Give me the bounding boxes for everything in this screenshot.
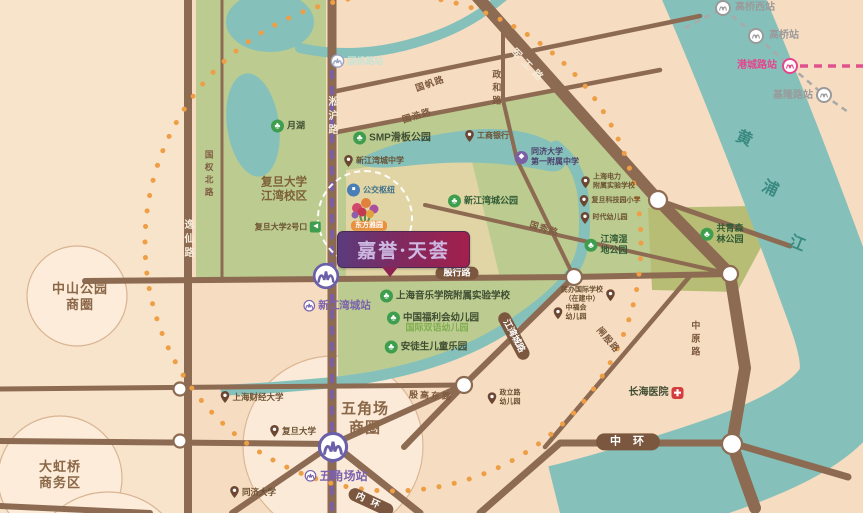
poi-jiangwan-wetland-park: ♣江湾湿地公园: [584, 234, 627, 257]
poi-fudan-gate2-text: 复旦大学2号口: [255, 222, 307, 232]
station-gaoqiao-label-text: 高桥站: [769, 30, 799, 42]
poi-bus-hub: ■公交枢纽: [347, 184, 395, 197]
station-xinjiangwancheng-text: 新江湾城站: [318, 300, 371, 313]
hospital-cross-icon: ✚: [672, 387, 684, 399]
road-yingaodong: 殷高东路: [409, 389, 454, 402]
poi-shanghai-electric-school-text: 上海电力附属实验学校: [593, 173, 635, 191]
poi-intl-bilingual-kindergarten: 国际双语幼儿园: [405, 323, 468, 334]
map-pin-icon: [230, 486, 239, 498]
station-gangchenglu-label-text: 港城路站: [737, 60, 777, 72]
road-songhu-text: 淞沪路: [325, 96, 337, 138]
map-pin-icon: [554, 307, 563, 319]
road-guohao: 国浩路: [401, 106, 433, 125]
poi-tongji-no1-middle-school: ◆同济大学第一附属中学: [515, 147, 579, 167]
metro-logo-icon: [304, 470, 316, 482]
poi-fudan-jiangwan-campus: 复旦大学江湾校区: [261, 176, 307, 205]
road-zhonghuan-badge: 中环: [596, 433, 660, 450]
metro-logo-icon: [330, 54, 344, 68]
poi-fudan-univ-text: 复旦大学: [282, 426, 316, 436]
school-icon: ◆: [515, 151, 528, 164]
poi-zhongfuhui-kindergarten: 中福会幼儿园: [554, 304, 587, 322]
poi-gongqing-forest-park-text: 共青森林公园: [716, 223, 743, 246]
poi-tongji-univ: 同济大学: [230, 486, 276, 498]
road-zhongyuan-text: 中原路: [690, 321, 701, 360]
poi-bus-hub-text: 公交枢纽: [363, 185, 395, 195]
poi-yuehu: ♣月湖: [271, 120, 305, 133]
road-yinhang-badge: 殷行路: [435, 267, 478, 280]
huangpu-river-char-3-text: 江: [786, 232, 808, 256]
poi-fudan-gate2: 复旦大学2号口◀: [255, 222, 321, 233]
road-songhu: 淞沪路: [325, 96, 337, 138]
road-zhayin-text: 闸殷路: [594, 325, 622, 355]
road-guoquanbei: 国权北路: [204, 150, 214, 200]
poi-andersen-children-park-text: 安徒生儿童乐园: [401, 341, 468, 352]
station-gaoqiaoxi-label-text: 高桥西站: [735, 2, 775, 14]
road-zhayin: 闸殷路: [594, 325, 622, 355]
poi-shanghai-finance-univ: 上海财经大学: [220, 391, 283, 403]
metro-logo-xinjiangwancheng: [313, 263, 340, 290]
poi-tongji-univ-text: 同济大学: [242, 487, 276, 497]
map-pin-icon: [488, 392, 497, 404]
poi-shangyin-experimental-school: ♣上海音乐学院附属实验学校: [380, 290, 510, 303]
poi-shanghai-finance-univ-text: 上海财经大学: [232, 392, 283, 402]
road-guoquanbei-text: 国权北路: [204, 150, 214, 200]
district-dahongqiao: 大虹桥商务区: [39, 459, 81, 492]
park-icon: ♣: [700, 228, 713, 241]
road-jungong-text: 军工路: [508, 47, 548, 87]
station-gangchenglu-label: 港城路站: [737, 60, 777, 72]
station-gaoqiaoxi-label: 高桥西站: [735, 2, 775, 14]
map-pin-icon: [581, 176, 590, 188]
park-icon: ♣: [387, 312, 400, 325]
poi-fudan-tech-primary: 复旦科技园小学: [580, 195, 641, 207]
huangpu-river-char-2-text: 浦: [759, 177, 781, 201]
station-jilonglu-label-text: 基隆路站: [773, 90, 813, 102]
road-guoxiu: 国秀路: [528, 219, 560, 238]
road-jungong: 军工路: [508, 47, 548, 87]
huangpu-river-char-3: 江: [786, 232, 808, 256]
district-dahongqiao-text: 大虹桥商务区: [39, 459, 81, 492]
poi-zhengli-kindergarten-text: 政立路幼儿园: [500, 389, 521, 407]
poi-xinjiangwan-school-text: 新江湾城中学: [356, 156, 404, 166]
poi-icbc-bank: 工商银行: [465, 130, 509, 142]
station-guofanlu: 国帆路站: [330, 54, 383, 68]
road-yinhang-badge-text: 殷行路: [443, 268, 470, 279]
road-yixian-text: 逸仙路: [181, 219, 193, 261]
map-pin-icon: [220, 391, 229, 403]
station-gaoqiao-label: 高桥站: [769, 30, 799, 42]
poi-changhai-hospital: 长海医院✚: [629, 387, 684, 399]
road-zhongyuan: 中原路: [690, 321, 701, 360]
poi-zhongfuhui-kindergarten-text: 中福会幼儿园: [566, 304, 587, 322]
poi-smp-skatepark-text: SMP滑板公园: [369, 132, 431, 144]
poi-zhengli-kindergarten: 政立路幼儿园: [488, 389, 521, 407]
poi-changhai-hospital-text: 长海医院: [629, 387, 669, 399]
map-pin-icon: [270, 425, 279, 437]
bus-hub-icon: ■: [347, 184, 360, 197]
poi-andersen-children-park: ♣安徒生儿童乐园: [385, 341, 468, 354]
poi-intl-school-under-construction-text: 民办国际学校（在建中）: [561, 286, 603, 304]
road-jiangwancheng-badge-text: 江湾城路: [501, 318, 527, 355]
poi-xinjiangwancheng-park-text: 新江湾城公园: [464, 196, 518, 207]
poi-intl-bilingual-kindergarten-text: 国际双语幼儿园: [405, 323, 468, 334]
station-jilonglu-label: 基隆路站: [773, 90, 813, 102]
station-wujiaochang: 五角场站: [304, 469, 367, 483]
poi-xinjiangwan-school: 新江湾城中学: [344, 155, 404, 167]
poi-smp-skatepark: ♣SMP滑板公园: [353, 132, 431, 145]
poi-shidai-kindergarten: 时代幼儿园: [581, 212, 628, 224]
gate-icon: ◀: [310, 222, 321, 233]
park-icon: ♣: [385, 341, 398, 354]
poi-shanghai-electric-school: 上海电力附属实验学校: [581, 173, 635, 191]
road-zhonghuan-badge-text: 中环: [610, 435, 656, 448]
project-name-badge: 嘉誉·天荟: [337, 231, 470, 268]
map-pin-icon: [344, 155, 353, 167]
poi-intl-school-under-construction: 民办国际学校（在建中）: [561, 286, 615, 304]
metro-logo-icon: [303, 300, 315, 312]
poi-shangyin-experimental-school-text: 上海音乐学院附属实验学校: [396, 290, 510, 301]
station-xinjiangwancheng: 新江湾城站: [303, 300, 371, 313]
poi-gongqing-forest-park: ♣共青森林公园: [700, 223, 743, 246]
poi-yuehu-text: 月湖: [287, 121, 305, 132]
map-pin-icon: [581, 212, 590, 224]
road-guohao-text: 国浩路: [401, 106, 433, 125]
road-guoxiu-text: 国秀路: [528, 219, 560, 238]
poi-fudan-tech-primary-text: 复旦科技园小学: [592, 197, 641, 205]
district-zhongshan-park-text: 中山公园商圈: [52, 281, 108, 314]
road-neihuan-badge: 内环: [347, 486, 396, 513]
park-icon: ♣: [271, 120, 284, 133]
poi-xinjiangwancheng-park: ♣新江湾城公园: [448, 195, 518, 208]
park-icon: ♣: [584, 239, 597, 252]
district-zhongshan-park: 中山公园商圈: [52, 281, 108, 314]
park-icon: ♣: [353, 132, 366, 145]
location-map: 嘉誉·天荟 高桥西站高桥站港城路站基隆路站黄浦江军工路政和路国帆路国浩路国秀路淞…: [0, 0, 863, 513]
poi-fudan-univ: 复旦大学: [270, 425, 316, 437]
project-tag: 东方雅园: [351, 221, 387, 231]
district-wujiaochang: 五角场商圈: [341, 400, 389, 438]
project-tag-text: 东方雅园: [355, 222, 383, 230]
poi-jiangwan-wetland-park-text: 江湾湿地公园: [600, 234, 627, 257]
huangpu-river-char-1-text: 黄: [733, 127, 755, 151]
park-icon: ♣: [448, 195, 461, 208]
road-neihuan-badge-text: 内环: [354, 490, 388, 513]
map-pin-icon: [606, 289, 615, 301]
map-pin-icon: [465, 130, 474, 142]
station-wujiaochang-text: 五角场站: [319, 469, 367, 483]
poi-shidai-kindergarten-text: 时代幼儿园: [593, 214, 628, 222]
huangpu-river-char-1: 黄: [733, 127, 755, 151]
station-guofanlu-text: 国帆路站: [347, 56, 383, 67]
road-yingaodong-text: 殷高东路: [409, 389, 454, 402]
poi-fudan-jiangwan-campus-text: 复旦大学江湾校区: [261, 176, 307, 205]
road-zhenghe-text: 政和路: [491, 70, 502, 109]
district-wujiaochang-text: 五角场商圈: [341, 400, 389, 438]
map-pin-icon: [580, 195, 589, 207]
road-yixian: 逸仙路: [181, 219, 193, 261]
poi-tongji-no1-middle-school-text: 同济大学第一附属中学: [531, 147, 579, 167]
park-icon: ♣: [380, 290, 393, 303]
road-guofan-text: 国帆路: [414, 74, 446, 94]
poi-icbc-bank-text: 工商银行: [477, 131, 509, 141]
metro-logo-icon: [313, 263, 340, 290]
road-guofan: 国帆路: [414, 74, 446, 94]
road-jiangwancheng-badge: 江湾城路: [496, 310, 532, 362]
project-name: 嘉誉·天荟: [357, 236, 450, 263]
road-zhenghe: 政和路: [491, 70, 502, 109]
huangpu-river-char-2: 浦: [759, 177, 781, 201]
